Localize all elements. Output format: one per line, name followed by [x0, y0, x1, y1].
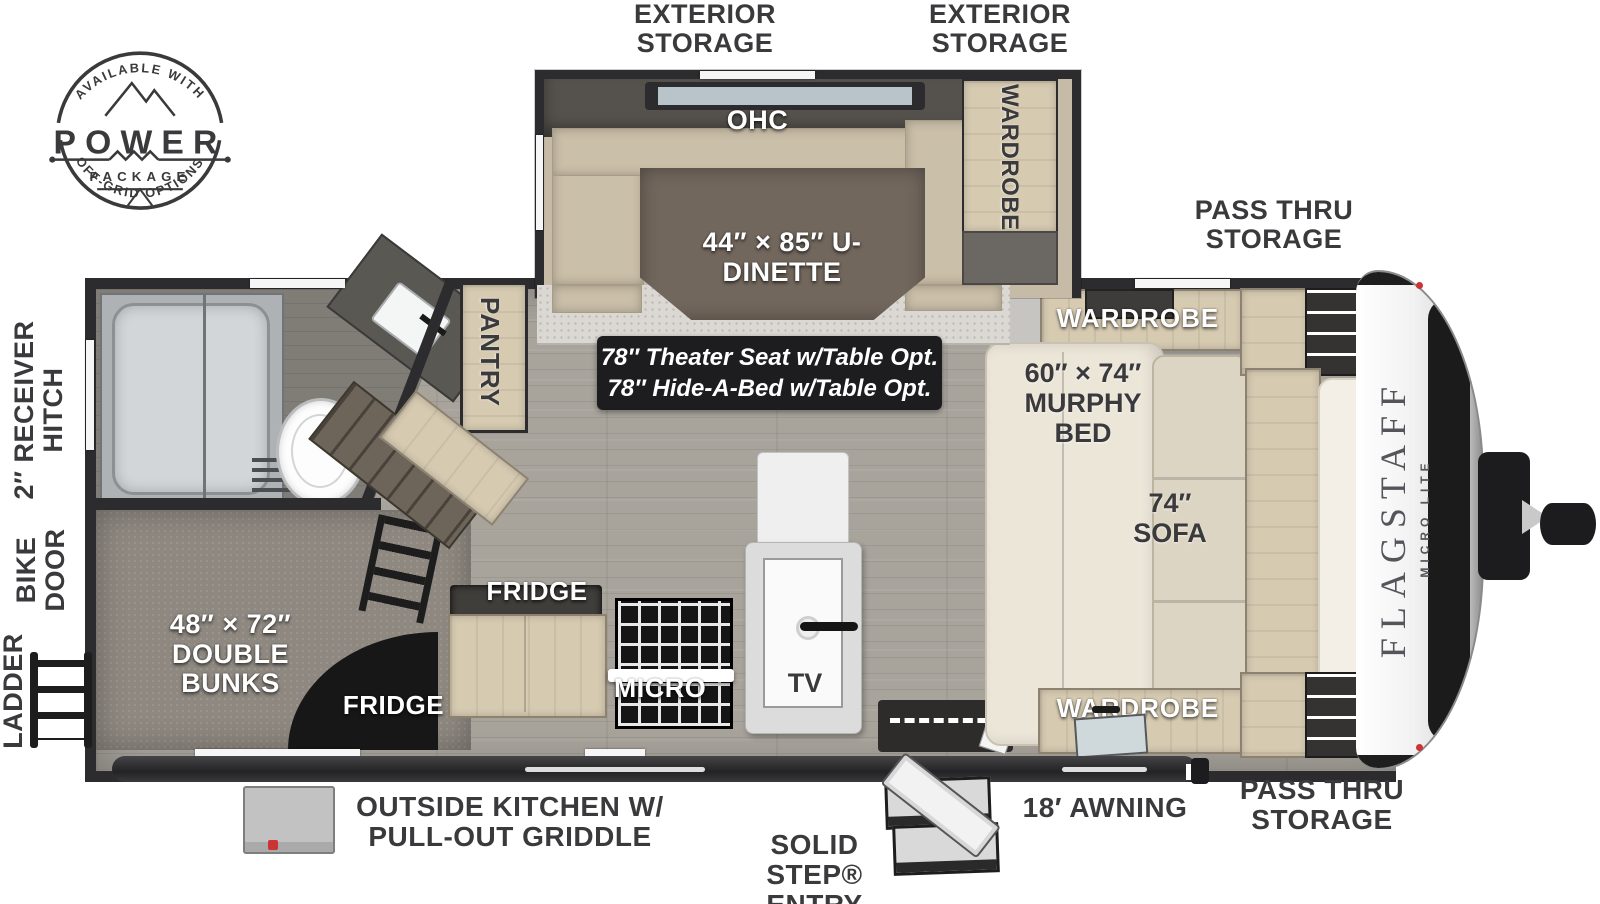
outside-kitchen-label: OUTSIDE KITCHEN W/ PULL-OUT GRIDDLE — [345, 792, 675, 852]
griddle-knob-icon — [268, 840, 278, 850]
badge-dot-left — [49, 157, 55, 163]
rear-faucet-icon — [1092, 706, 1120, 713]
ohc-label: OHC — [715, 106, 800, 136]
bike-door-label: BIKE DOOR — [12, 525, 72, 615]
window-top-left — [250, 279, 345, 288]
brand-block: FLAGSTAFF MICRO LITE — [1372, 298, 1444, 738]
shower-door-divider — [203, 295, 206, 501]
awning-end-cap — [1191, 758, 1209, 784]
cap-marker-bottom — [1416, 744, 1423, 751]
awning-highlight-1 — [525, 767, 705, 772]
awning-label: 18′ AWNING — [1020, 793, 1190, 823]
cap-marker-top — [1416, 282, 1423, 289]
window-slide-left — [536, 135, 543, 230]
entry-upper-panel — [757, 452, 849, 550]
dinette-bench-right-ext — [905, 285, 1002, 311]
u-dinette-label: 44″ × 85″ U-DINETTE — [682, 228, 882, 287]
exterior-storage-left-label: EXTERIOR STORAGE — [570, 0, 840, 58]
awning-highlight-2 — [1062, 767, 1147, 772]
shower-tub — [112, 303, 270, 495]
slide-wardrobe-label: WARDROBE — [994, 84, 1022, 224]
window-left-wall — [86, 340, 94, 450]
fridge-top-label: FRIDGE — [477, 577, 597, 606]
murphy-bed-label: 60″ × 74″ MURPHY BED — [1008, 358, 1158, 449]
front-wardrobe-top — [1240, 288, 1309, 376]
pass-thru-storage-top-label: PASS THRU STORAGE — [1164, 196, 1384, 254]
micro-label: MICRO — [600, 674, 720, 704]
floorplan-canvas: AVAILABLE WITH POWER PACKAGE OFF-GRID OP… — [0, 0, 1600, 904]
window-top-right — [1135, 279, 1230, 288]
options-box: 78″ Theater Seat w/Table Opt. 78″ Hide-A… — [597, 336, 942, 410]
exterior-storage-right-label: EXTERIOR STORAGE — [865, 0, 1135, 58]
ladder-rungs-icon — [30, 660, 92, 740]
receiver-hitch-label: 2″ RECEIVER HITCH — [10, 305, 70, 515]
pantry-label: PANTRY — [478, 287, 504, 417]
fridge-cabinet — [448, 614, 607, 718]
hitch-coupler — [1540, 503, 1596, 545]
window-slide-top — [700, 71, 815, 79]
slide-window-glass — [658, 87, 912, 105]
front-wardrobe-bottom — [1240, 672, 1309, 758]
solid-step-label: SOLID STEP® ENTRY — [742, 830, 887, 904]
pass-thru-storage-bottom-label: PASS THRU STORAGE — [1222, 775, 1422, 835]
slide-wardrobe-base — [962, 231, 1058, 285]
wardrobe-top-label: WARDROBE — [1048, 304, 1228, 333]
fridge-bottom-label: FRIDGE — [336, 691, 451, 720]
brand-name: FLAGSTAFF — [1372, 298, 1414, 738]
fridge-cabinet-seam — [524, 616, 526, 712]
cap-trim-bottom — [1356, 755, 1482, 768]
outside-kitchen-griddle — [243, 786, 335, 854]
brand-series: MICRO LITE — [1418, 298, 1432, 738]
range-micro-unit — [615, 598, 733, 729]
dinette-bench-left-ext — [552, 285, 642, 313]
ladder-label: LADDER — [0, 631, 29, 751]
double-bunks-label: 48″ × 72″ DOUBLE BUNKS — [148, 610, 313, 699]
door-handle-icon — [800, 622, 858, 631]
tv-label: TV — [770, 668, 840, 698]
options-line1: 78″ Theater Seat w/Table Opt. — [597, 342, 942, 373]
rear-sink — [1074, 714, 1149, 759]
sofa-label: 74″ SOFA — [1125, 488, 1215, 548]
mountain-icon — [105, 83, 174, 116]
badge-dot-right — [225, 157, 231, 163]
power-package-badge: AVAILABLE WITH POWER PACKAGE OFF-GRID OP… — [38, 26, 242, 230]
options-line2: 78″ Hide-A-Bed w/Table Opt. — [597, 373, 942, 404]
